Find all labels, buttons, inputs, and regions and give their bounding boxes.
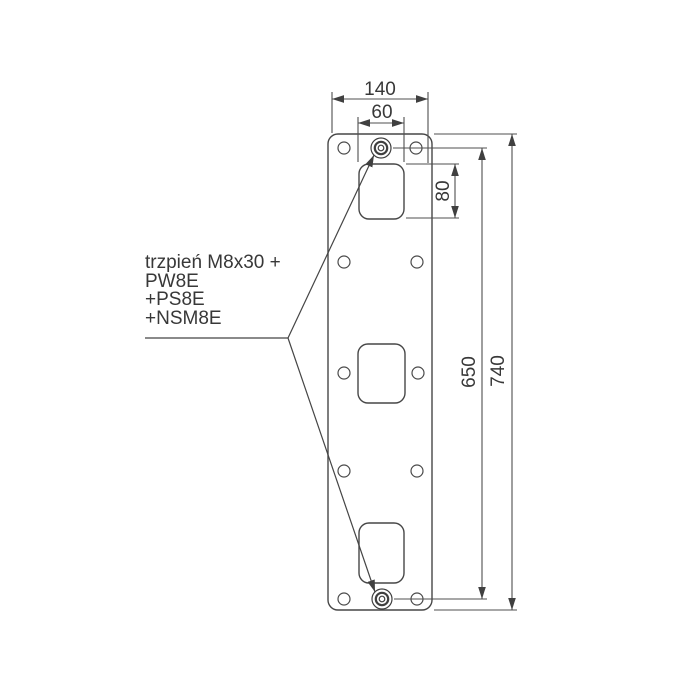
hole	[411, 256, 423, 268]
cutout-middle	[358, 344, 405, 403]
dimension-label-740: 740	[488, 355, 509, 387]
label-line-4: +NSM8E	[145, 308, 222, 329]
label-line-1: trzpień M8x30 +	[145, 252, 281, 273]
dimension-label-60: 60	[371, 102, 392, 123]
dimension-label-140: 140	[364, 79, 396, 100]
mounting-plate	[328, 134, 432, 610]
dimension-label-80: 80	[433, 180, 454, 201]
drawing-page: 140 60 80 650 740	[0, 0, 700, 700]
dimension-cutout-width: 60	[358, 102, 404, 162]
hole	[411, 465, 423, 477]
technical-drawing-canvas: 140 60 80 650 740	[0, 0, 700, 700]
hole	[338, 256, 350, 268]
dimension-pin-spacing: 650	[393, 148, 487, 599]
hole	[338, 367, 350, 379]
hole	[338, 465, 350, 477]
part-label: trzpień M8x30 + PW8E +PS8E +NSM8E	[145, 252, 281, 329]
hole	[338, 142, 350, 154]
dimension-label-650: 650	[459, 356, 480, 388]
cutout-bottom	[359, 523, 404, 583]
mounting-holes	[338, 142, 424, 605]
label-line-3: +PS8E	[145, 289, 205, 310]
plate-outline	[328, 134, 432, 610]
hole	[338, 593, 350, 605]
leader-line	[145, 155, 375, 592]
hole	[412, 367, 424, 379]
